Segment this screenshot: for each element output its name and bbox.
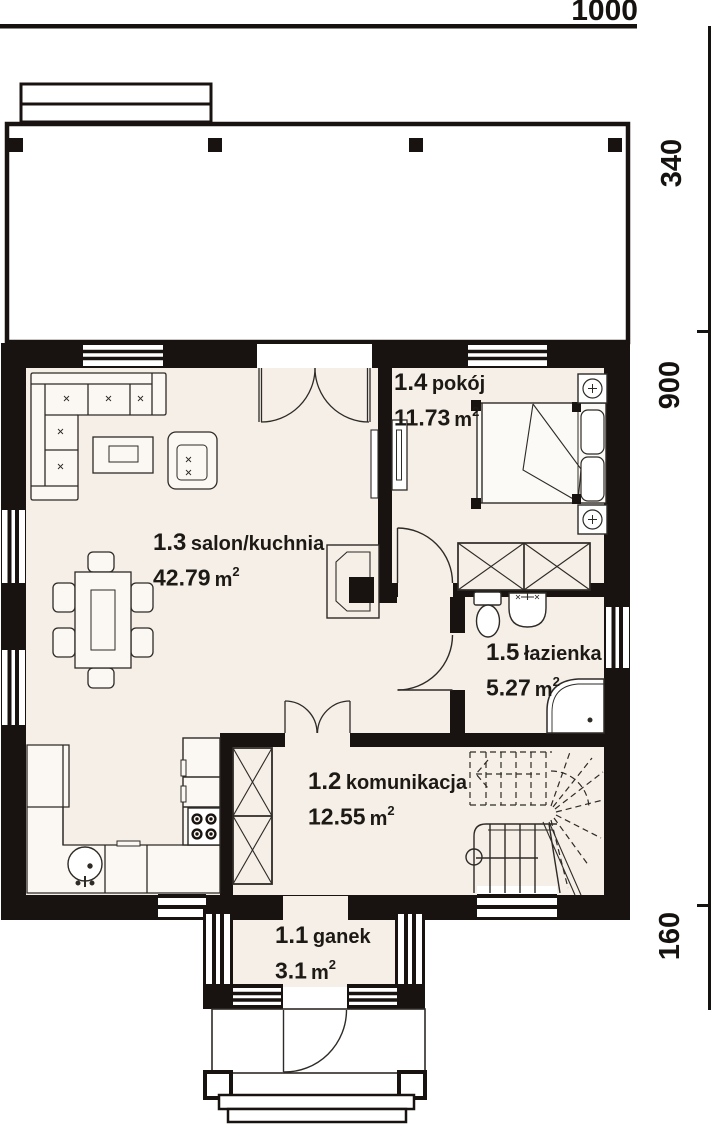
radiator-living: [371, 430, 378, 498]
floor-plan: 1000 340 900 160 1.3 salon/kuchnia 42.79…: [0, 0, 718, 1124]
wardrobe-hall: [233, 748, 272, 884]
coffee-table: [93, 437, 153, 473]
dimension-label-160: 160: [654, 891, 684, 981]
wardrobe-bedroom: [458, 543, 590, 590]
armchair: [168, 432, 217, 489]
nightstand-top: [578, 374, 607, 403]
dimension-line-top: [0, 24, 637, 29]
room-label-ganek: 1.1 ganek 3.1m2: [275, 922, 371, 989]
nightstand-bottom: [578, 505, 607, 534]
dimension-line-right: [697, 26, 711, 1010]
dimension-label-top: 1000: [556, 0, 638, 28]
fireplace: [327, 545, 379, 618]
washbasin: [509, 593, 546, 627]
terrace-steps: [21, 84, 211, 122]
room-label-lazienka: 1.5 łazienka 5.27m2: [486, 639, 602, 706]
room-label-salon: 1.3 salon/kuchnia 42.79m2: [153, 529, 324, 596]
toilet: [474, 592, 501, 637]
terrace: [7, 124, 628, 342]
room-label-pokoj: 1.4 pokój 11.73m2: [394, 369, 485, 436]
bed: [471, 400, 606, 509]
dimension-label-900: 900: [654, 340, 684, 430]
room-label-komunikacja: 1.2 komunikacja 12.55m2: [308, 768, 467, 835]
stove: [188, 808, 220, 845]
dimension-label-340: 340: [656, 118, 686, 208]
